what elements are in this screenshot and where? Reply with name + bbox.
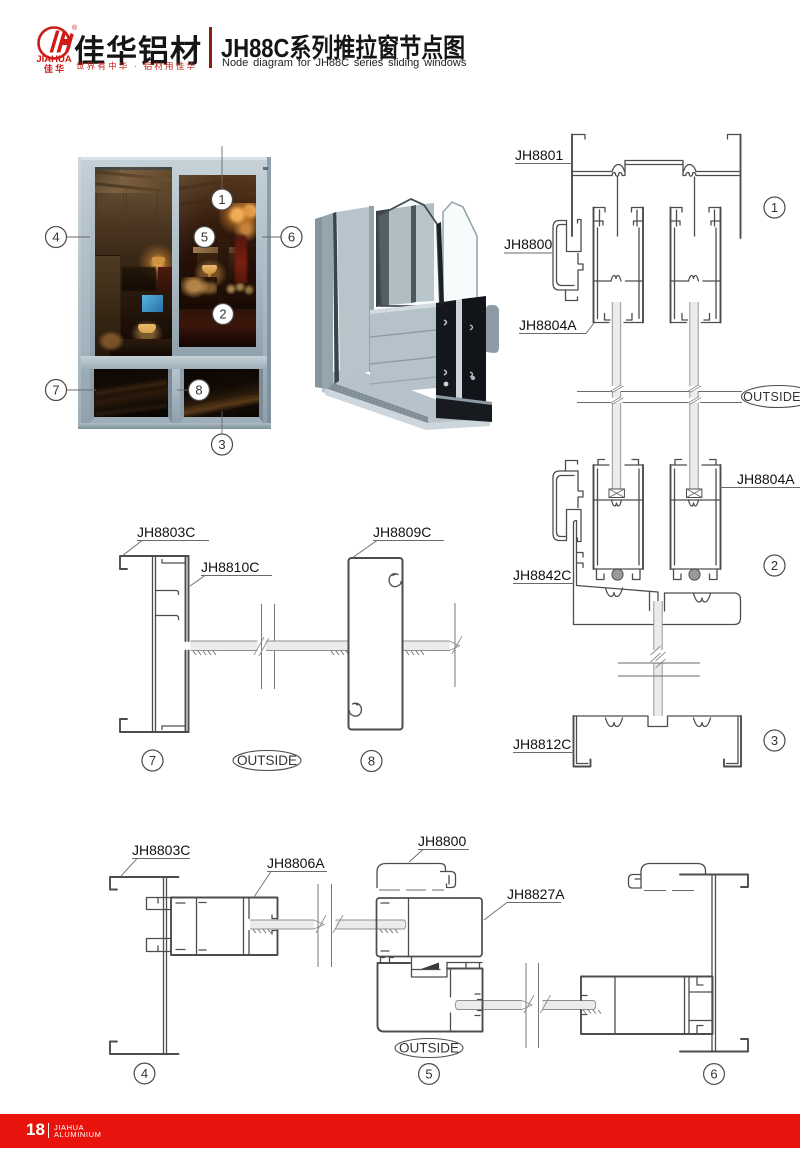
svg-text:JH8803C: JH8803C [132,842,190,858]
svg-text:2: 2 [771,558,778,573]
svg-text:2: 2 [219,307,226,322]
svg-text:JH8812C: JH8812C [513,736,571,752]
svg-text:6: 6 [710,1067,717,1082]
svg-text:5: 5 [201,230,208,245]
svg-text:3: 3 [771,733,778,748]
svg-text:7: 7 [52,383,59,398]
svg-text:3: 3 [218,437,225,452]
svg-text:JH8842C: JH8842C [513,567,571,583]
svg-text:JH8804A: JH8804A [737,471,795,487]
svg-text:JH8803C: JH8803C [137,524,195,540]
svg-text:JH8800: JH8800 [504,236,552,252]
svg-text:8: 8 [195,383,202,398]
svg-text:OUTSIDE: OUTSIDE [237,753,297,768]
svg-text:JH8801: JH8801 [515,147,563,163]
svg-text:5: 5 [425,1067,432,1082]
svg-text:JH8809C: JH8809C [373,524,431,540]
svg-text:8: 8 [368,754,375,769]
svg-text:JH8810C: JH8810C [201,559,259,575]
svg-text:JH8800: JH8800 [418,833,466,849]
svg-text:4: 4 [141,1066,148,1081]
svg-text:OUTSIDE: OUTSIDE [743,390,800,404]
svg-text:OUTSIDE: OUTSIDE [399,1041,459,1056]
svg-text:1: 1 [218,192,225,207]
svg-text:4: 4 [52,230,59,245]
svg-text:JH8804A: JH8804A [519,317,577,333]
svg-text:JH8806A: JH8806A [267,855,325,871]
svg-text:7: 7 [149,753,156,768]
svg-text:6: 6 [288,230,295,245]
svg-text:1: 1 [771,200,778,215]
svg-text:JH8827A: JH8827A [507,886,565,902]
